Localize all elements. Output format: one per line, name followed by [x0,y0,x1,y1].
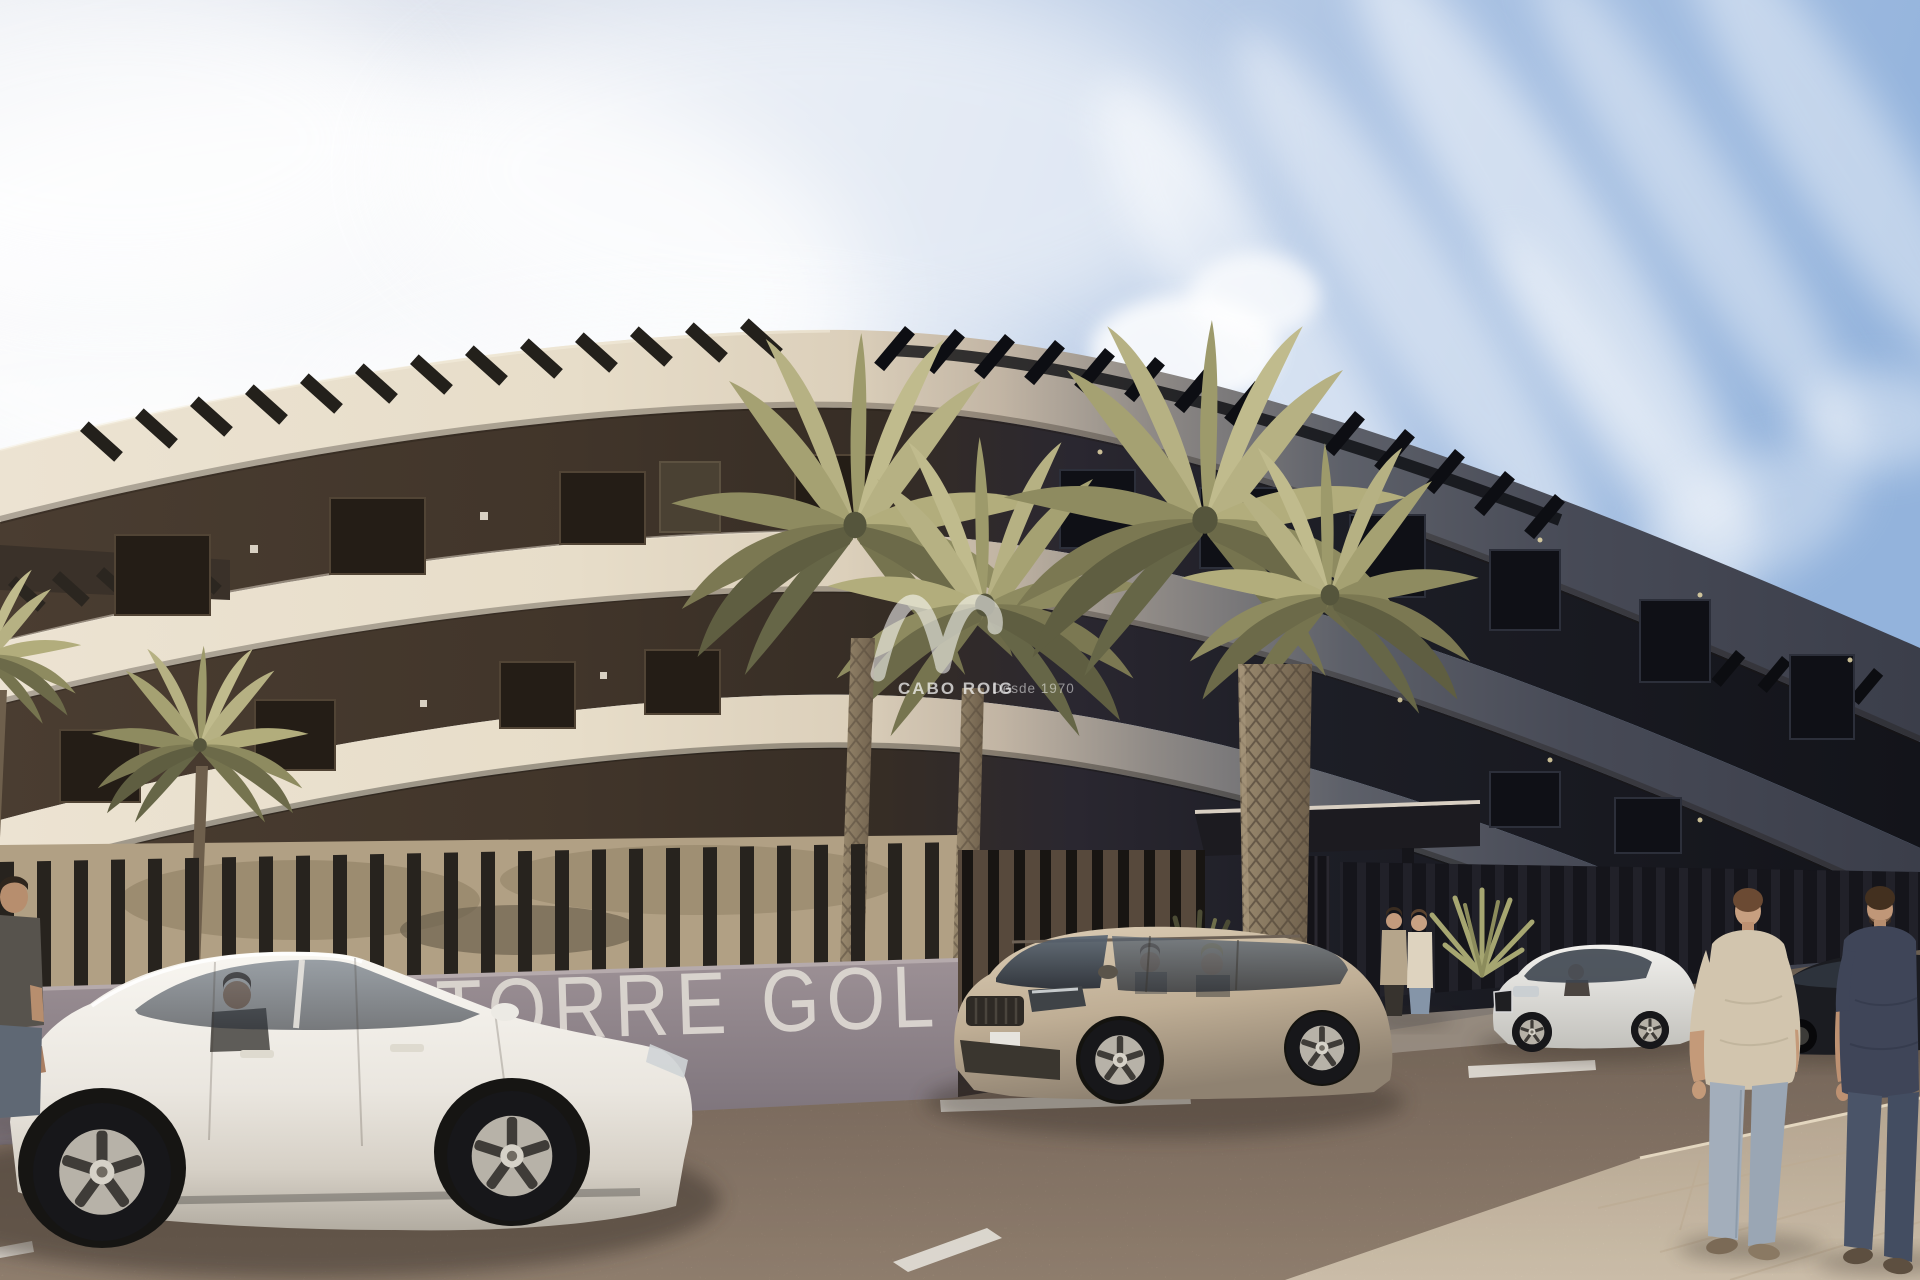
render-scene: TORRE GOL [0,0,1920,1280]
suv-champagne [954,927,1392,1104]
scene-canvas: TORRE GOL [0,0,1920,1280]
watermark-tagline: Desde 1970 [992,681,1075,696]
